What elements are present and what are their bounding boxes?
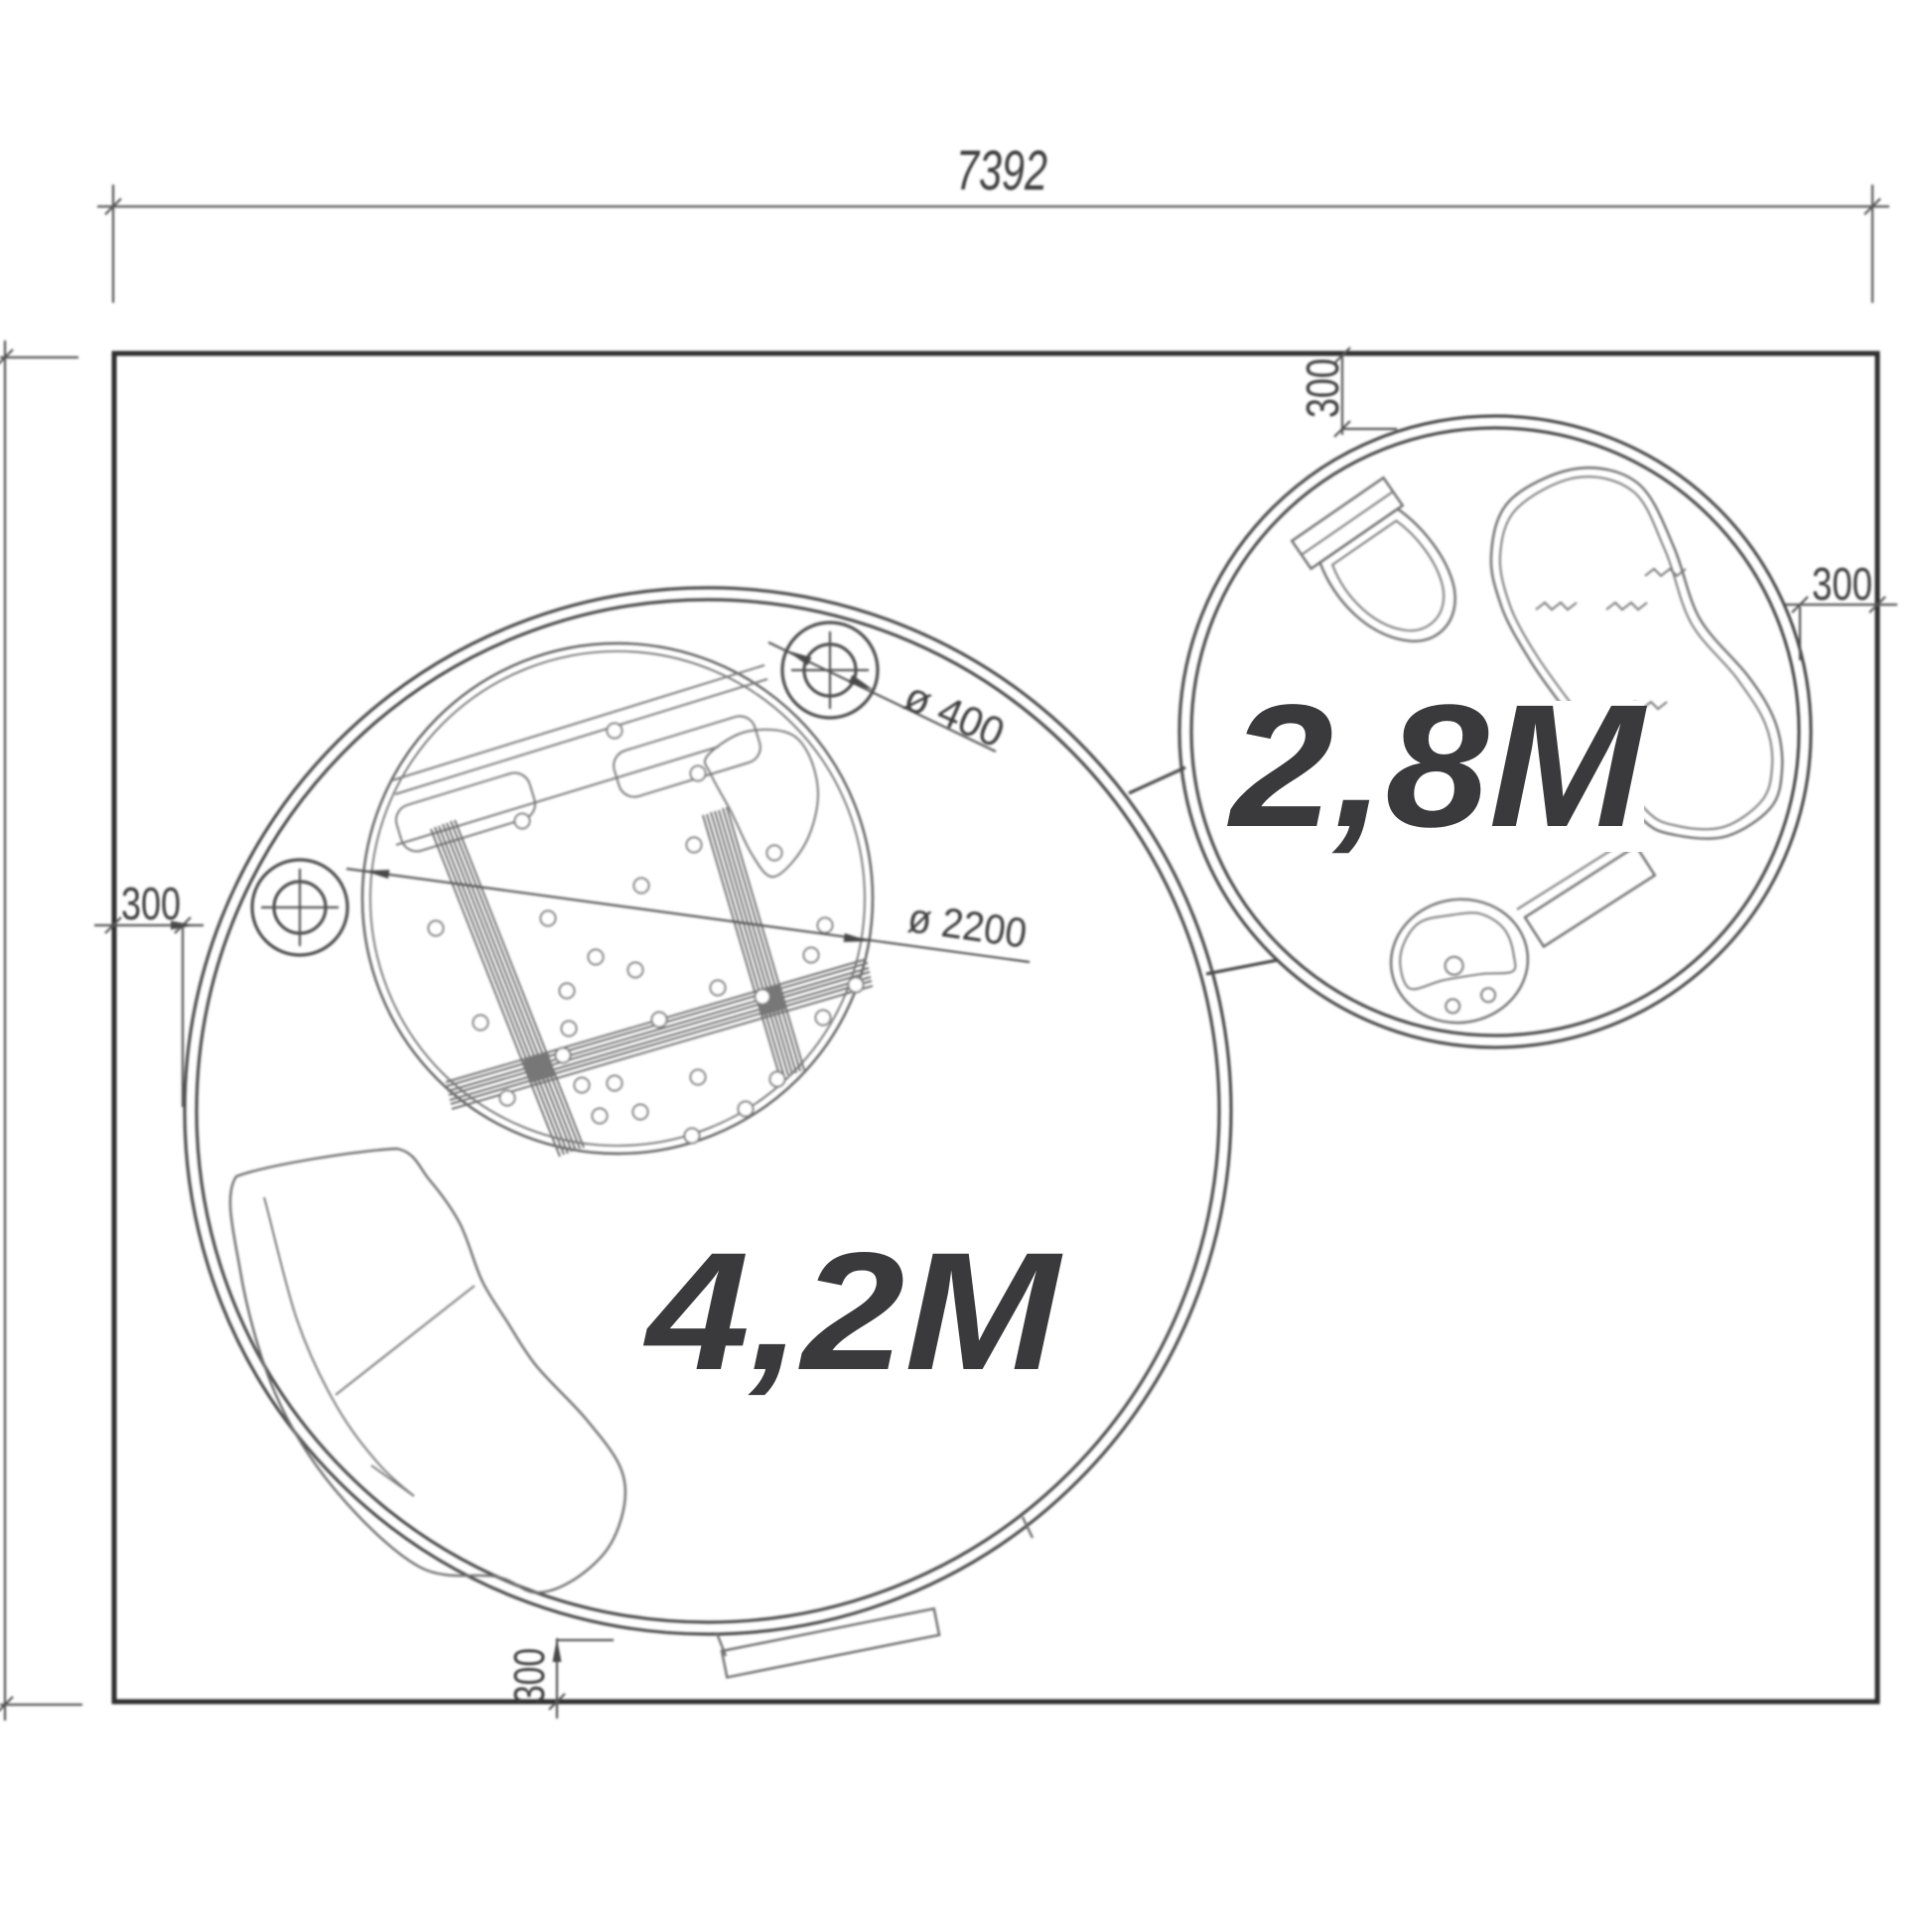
svg-text:300: 300: [121, 878, 181, 929]
svg-text:300: 300: [505, 1648, 554, 1704]
svg-text:2,8М: 2,8М: [1227, 667, 1647, 863]
svg-text:7392: 7392: [956, 139, 1047, 203]
svg-text:300: 300: [1812, 558, 1872, 610]
svg-text:4,2М: 4,2М: [643, 1217, 1063, 1405]
svg-text:300: 300: [1297, 358, 1348, 418]
svg-text:ø 400: ø 400: [897, 672, 1011, 757]
